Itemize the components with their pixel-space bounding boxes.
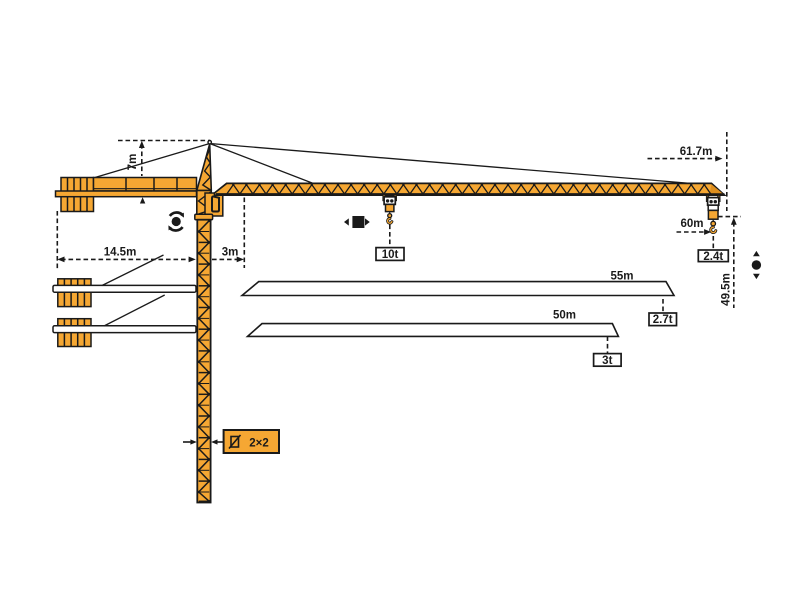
- svg-text:60m: 60m: [680, 218, 703, 230]
- svg-text:2.4t: 2.4t: [703, 251, 723, 263]
- svg-text:50m: 50m: [553, 310, 576, 322]
- svg-text:49.5m: 49.5m: [720, 273, 732, 306]
- svg-text:55m: 55m: [610, 271, 633, 283]
- svg-text:61.7m: 61.7m: [680, 146, 713, 158]
- svg-text:2×2: 2×2: [249, 437, 269, 449]
- svg-text:7m: 7m: [127, 154, 139, 171]
- svg-text:3t: 3t: [602, 355, 612, 367]
- svg-text:14.5m: 14.5m: [104, 247, 137, 259]
- svg-text:10t: 10t: [382, 249, 399, 261]
- svg-text:3m: 3m: [222, 247, 239, 259]
- svg-text:2.7t: 2.7t: [653, 314, 673, 326]
